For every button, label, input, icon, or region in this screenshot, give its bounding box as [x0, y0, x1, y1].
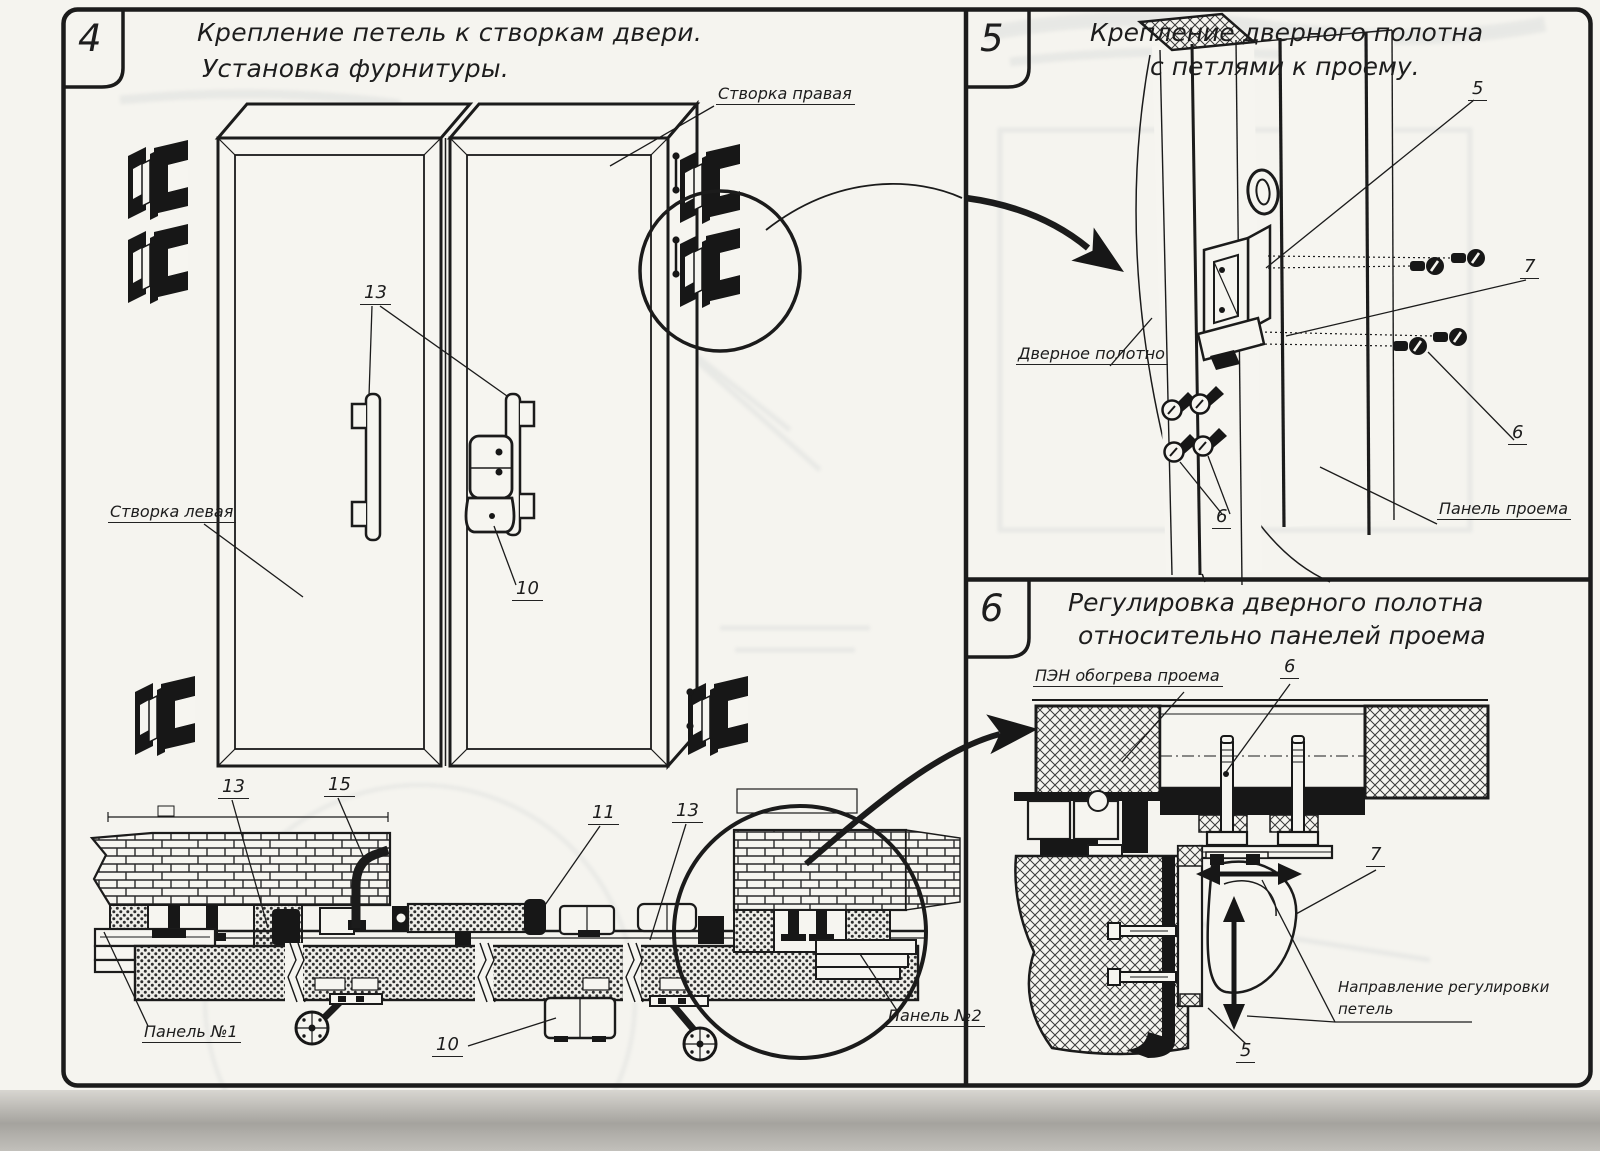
leader-dot — [1223, 771, 1229, 777]
panel5-title-line1: Крепление дверного полотна — [1090, 20, 1483, 46]
label-panel-1: Панель №1 — [142, 1024, 241, 1043]
label-left-leaf: Створка левая — [108, 504, 236, 523]
panel5-drawing — [966, 14, 1485, 585]
section-break — [285, 943, 305, 1003]
callout-6-screws-left: 6 — [1212, 508, 1231, 529]
heater-block-left — [1036, 706, 1160, 798]
arc-to-panel5 — [766, 184, 962, 230]
panel4-title-line2: Установка фурнитуры. — [202, 56, 509, 82]
label-heater: ПЭН обогрева проема — [1033, 668, 1223, 687]
panel6-number: 6 — [980, 590, 1004, 629]
paper-sheet: 4 Крепление петель к створкам двери. Уст… — [0, 0, 1600, 1151]
callout-5-hinge: 5 — [1236, 1042, 1255, 1063]
heater-block-right — [1365, 706, 1488, 798]
door-latch — [466, 436, 514, 532]
hinge-icon — [135, 676, 195, 756]
panel6-drawing — [1014, 700, 1488, 1058]
section-break — [475, 943, 495, 1003]
panel4-title-line1: Крепление петель к створкам двери. — [197, 20, 702, 46]
label-adjustment-direction-line1: Направление регулировки — [1338, 980, 1549, 996]
hinge-icon — [680, 228, 740, 308]
callout-10-latch: 10 — [512, 580, 543, 601]
hinge-icon — [128, 224, 188, 304]
callout-6-screw-right: 6 — [1508, 424, 1527, 445]
callout-7-hinge-plate: 7 — [1366, 846, 1385, 867]
hinge-icon — [688, 676, 748, 756]
label-adjustment-direction-line2: петель — [1338, 1002, 1393, 1018]
arrow-head — [986, 709, 1040, 754]
callout-10-section: 10 — [432, 1036, 463, 1057]
callout-13-section-right: 13 — [672, 802, 703, 823]
big-curved-arrow — [966, 198, 1088, 248]
callout-13-section-left: 13 — [218, 778, 249, 799]
brick-wall-left — [92, 833, 390, 905]
callout-15-section: 15 — [324, 776, 355, 797]
fixing-bolt-icon — [1108, 969, 1176, 985]
panel4-number: 4 — [78, 20, 102, 59]
scanner-edge-band — [0, 1090, 1600, 1151]
callout-6-bolt: 6 — [1280, 658, 1299, 679]
callout-7-plate: 7 — [1520, 258, 1539, 279]
heater-profile — [408, 904, 526, 932]
panel5-title-line2: с петлями к проему. — [1150, 54, 1420, 80]
callout-5-hinge: 5 — [1468, 80, 1487, 101]
hinge-icon — [680, 144, 740, 224]
section-break — [623, 943, 643, 1003]
callout-11-section: 11 — [588, 804, 619, 825]
callout-13-handles: 13 — [360, 284, 391, 305]
fixing-bolt-icon — [1108, 923, 1176, 939]
caster-wheel-icon — [684, 1028, 716, 1060]
label-panel-2: Панель №2 — [886, 1008, 985, 1027]
brick-wall-right — [734, 830, 906, 910]
panel5-number: 5 — [980, 20, 1004, 59]
caster-wheel-icon — [296, 1012, 328, 1044]
panel6-title-line1: Регулировка дверного полотна — [1068, 590, 1483, 616]
label-opening-panel: Панель проема — [1437, 501, 1571, 520]
scanned-manual-page: { "panels": [ { "number": "4", "title": … — [0, 0, 1600, 1151]
screw-icon — [1393, 337, 1427, 355]
hinge-icon — [128, 140, 188, 220]
panel4-doors-drawing — [128, 104, 962, 766]
screw-icon — [1433, 328, 1467, 346]
arrow-head — [1071, 227, 1135, 288]
label-right-leaf: Створка правая — [716, 86, 855, 105]
label-door-leaf: Дверное полотно — [1016, 346, 1168, 365]
screw-icon — [1410, 257, 1444, 275]
hinge-assembly — [1198, 226, 1270, 370]
panel6-title-line2: относительно панелей проема — [1078, 623, 1486, 649]
